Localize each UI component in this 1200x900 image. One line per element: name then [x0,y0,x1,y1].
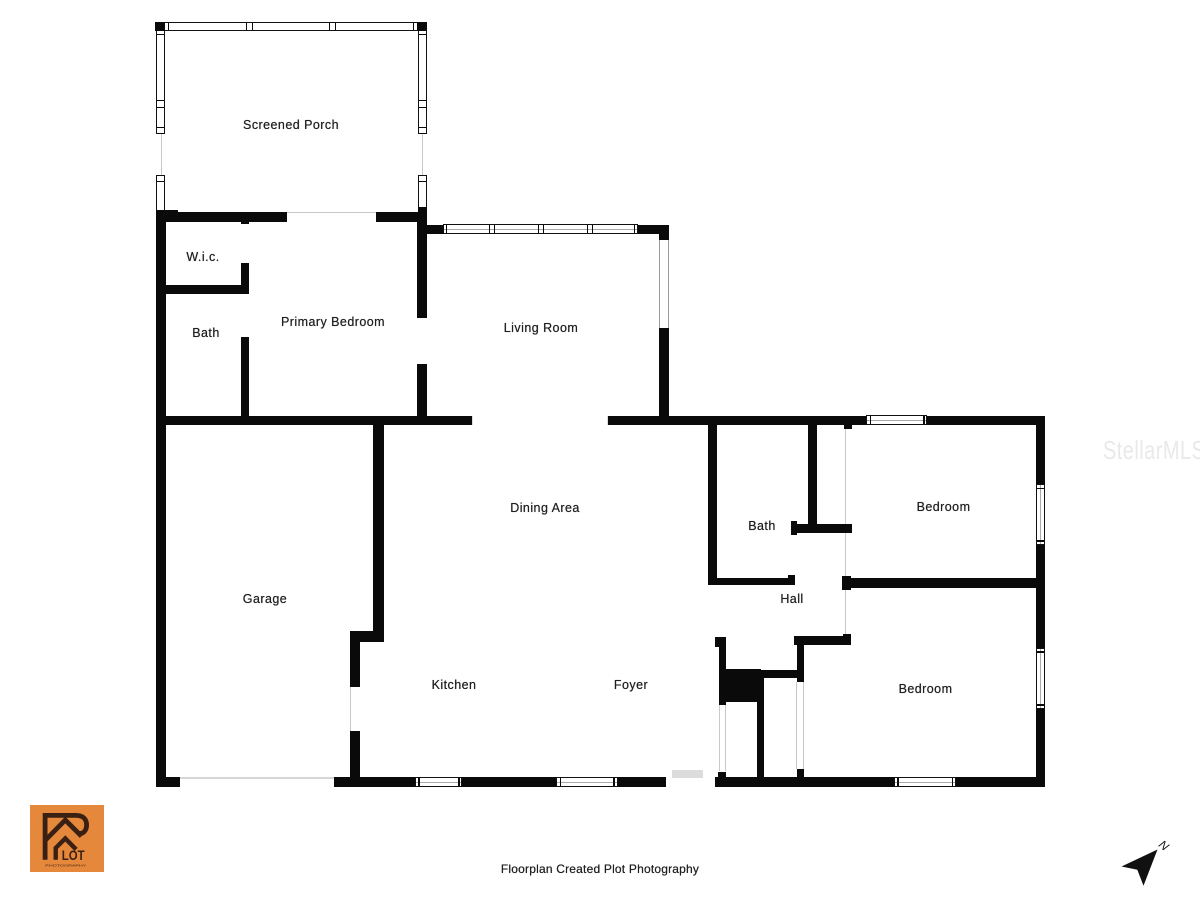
svg-text:PHOTOGRAPHY: PHOTOGRAPHY [45,863,86,867]
svg-text:LOT: LOT [62,847,85,863]
svg-text:N: N [1156,837,1172,854]
